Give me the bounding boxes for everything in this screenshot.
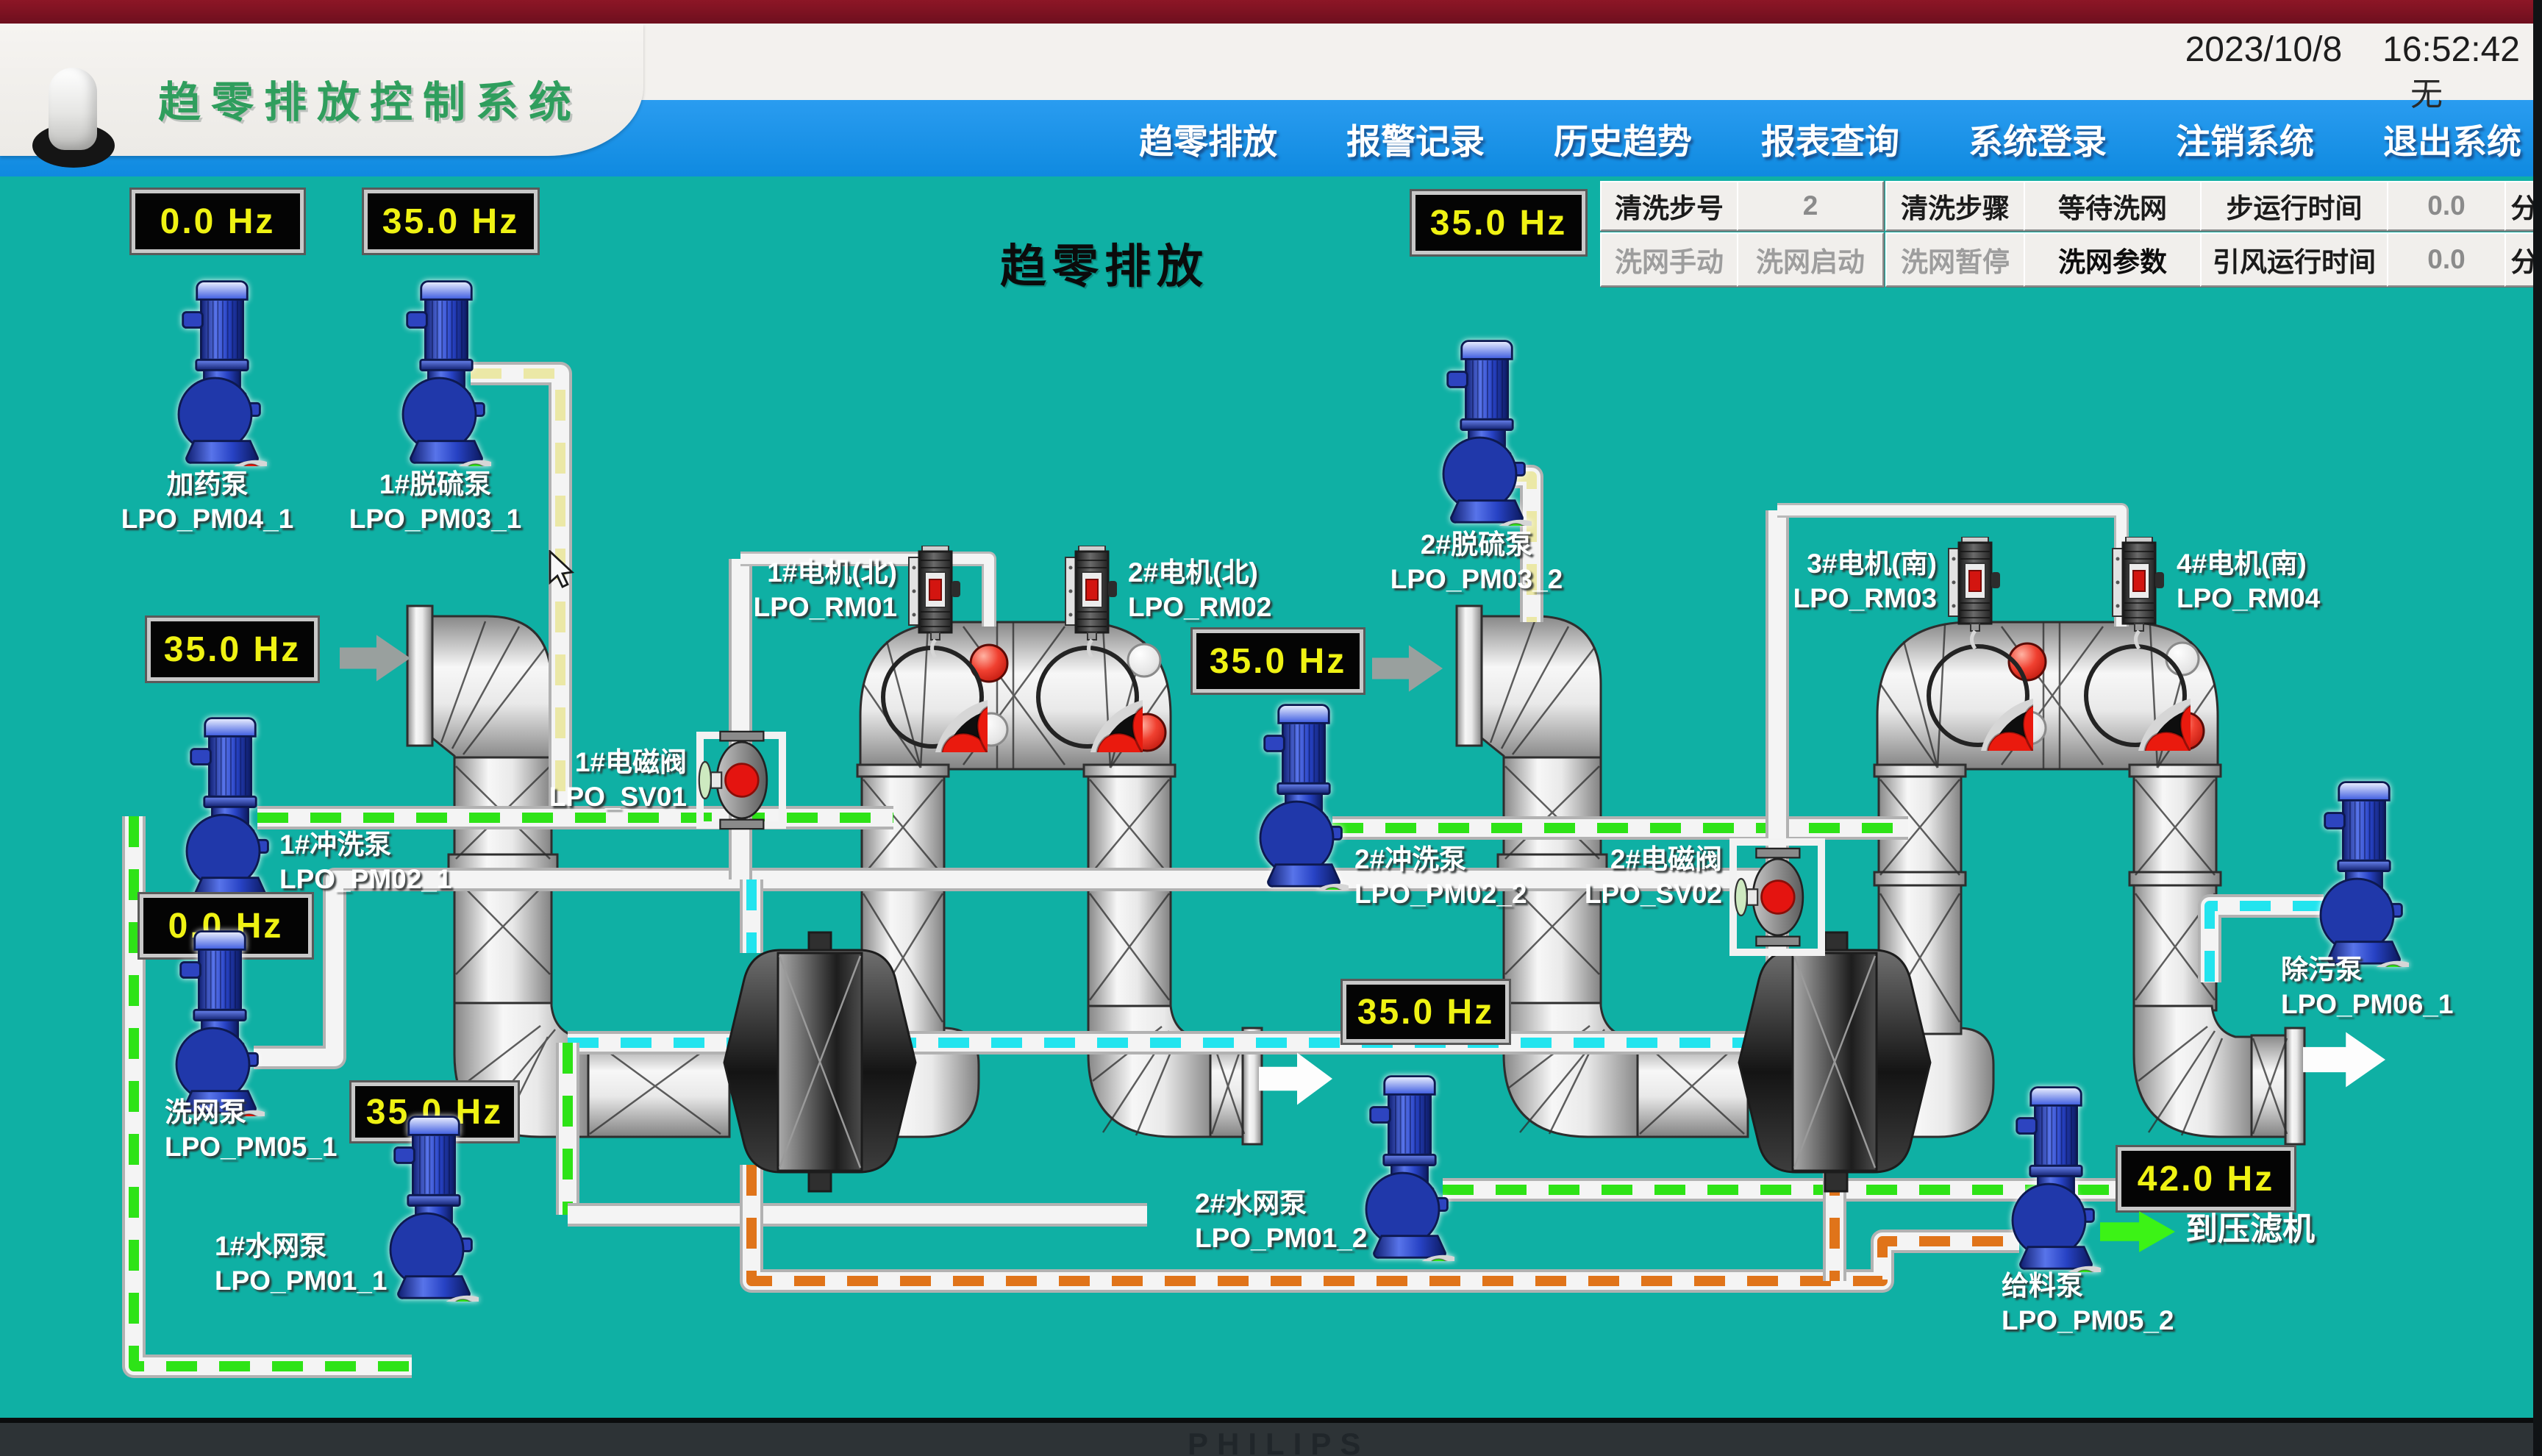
hz-value: 35.0 Hz (1357, 992, 1494, 1032)
pump-lpo_pm04_1-name: 加药泵 (121, 468, 293, 502)
pump-lpo_pm01_2-code: LPO_PM01_2 (1195, 1221, 1367, 1256)
alarm-beacon-icon (31, 68, 119, 171)
nav-item-3[interactable]: 报表查询 (1761, 113, 1899, 164)
motor-lpo_rm03-code: LPO_RM03 (1793, 582, 1937, 616)
motor-lpo_rm02-name: 2#电机(北) (1128, 556, 1271, 590)
flow-out-label: 到压滤机 (2185, 1209, 2315, 1249)
hz-display-lpo_pm03_2: 35.0 Hz (1412, 191, 1585, 254)
hz-value: 35.0 Hz (1430, 203, 1567, 243)
valve-lpo_sv01-code: LPO_SV01 (549, 780, 687, 815)
nav-item-0[interactable]: 趋零排放 (1139, 113, 1277, 164)
hz-value: 42.0 Hz (2138, 1159, 2274, 1199)
pump-lpo_pm01_1-code: LPO_PM01_1 (215, 1264, 387, 1299)
pump-lpo_pm02_1-label: 1#冲洗泵LPO_PM02_1 (279, 828, 451, 896)
pump-lpo_pm02_2-label: 2#冲洗泵LPO_PM02_2 (1354, 843, 1527, 911)
pump-lpo_pm01_1-label: 1#水网泵LPO_PM01_1 (215, 1230, 387, 1298)
system-title: 趋零排放控制系统 (158, 68, 582, 129)
panel-r1-c1-label: 清洗步号 (1600, 181, 1738, 231)
hz-display-lpo_pm02_2: 35.0 Hz (1193, 629, 1363, 693)
pump-lpo_pm01_2-name: 2#水网泵 (1195, 1187, 1367, 1221)
nav-menu: 趋零排放报警记录历史趋势报表查询系统登录注销系统退出系统 (1139, 104, 2521, 172)
hz-display-lpo_pm03_1: 35.0 Hz (364, 190, 538, 253)
pump-lpo_pm03_2-label: 2#脱硫泵LPO_PM03_2 (1390, 528, 1563, 596)
hz-display-lpo_pm01_2: 35.0 Hz (1343, 981, 1509, 1043)
valve-lpo_sv02-label: 2#电磁阀LPO_SV02 (1585, 843, 1722, 911)
panel-r2-c4-button[interactable]: 洗网参数 (2024, 232, 2202, 287)
pump-lpo_pm01_2-label: 2#水网泵LPO_PM01_2 (1195, 1187, 1367, 1255)
motor-lpo_rm01-code: LPO_RM01 (754, 590, 897, 625)
motor-lpo_rm04-code: LPO_RM04 (2177, 582, 2320, 616)
mouse-cursor (547, 550, 576, 588)
pump-lpo_pm02_2[interactable] (1259, 699, 1349, 890)
pump-lpo_pm05_1-code: LPO_PM05_1 (165, 1130, 337, 1165)
pump-lpo_pm02_1[interactable] (185, 713, 275, 903)
panel-r2-c5-label: 引风运行时间 (2200, 232, 2388, 287)
pump-lpo_pm02_1-code: LPO_PM02_1 (279, 863, 451, 897)
pump-lpo_pm04_1-label: 加药泵LPO_PM04_1 (121, 468, 293, 536)
hz-value: 35.0 Hz (164, 629, 301, 670)
valve-lpo_sv01[interactable] (698, 729, 785, 831)
page-title: 趋零排放 (1000, 229, 1209, 296)
pump-lpo_pm04_1[interactable] (177, 276, 267, 466)
pump-lpo_pm02_2-name: 2#冲洗泵 (1354, 843, 1527, 877)
valve-lpo_sv02[interactable] (1734, 846, 1821, 948)
motor-lpo_rm01[interactable] (907, 546, 963, 660)
pump-lpo_pm02_1-name: 1#冲洗泵 (279, 828, 451, 863)
panel-r2-c2-button-disabled[interactable]: 洗网启动 (1737, 232, 1884, 287)
hz-value: 35.0 Hz (382, 201, 519, 242)
hz-display-lpo_pm05_2: 42.0 Hz (2118, 1147, 2294, 1210)
pump-lpo_pm05_1[interactable] (175, 926, 265, 1116)
motor-lpo_rm04[interactable] (2111, 537, 2167, 652)
duct-fan-4 (2080, 640, 2191, 751)
panel-r2-c3-button-disabled[interactable]: 洗网暂停 (1885, 232, 2025, 287)
panel-r2-c1-button-disabled[interactable]: 洗网手动 (1600, 232, 1738, 287)
panel-r1-c5-label: 步运行时间 (2200, 181, 2388, 231)
valve-lpo_sv01-label: 1#电磁阀LPO_SV01 (549, 746, 687, 814)
valve-lpo_sv02-code: LPO_SV02 (1585, 877, 1722, 912)
monitor-brand-logo: PHILIPS (1188, 1427, 1369, 1456)
hz-display-lpo_pm02_1: 35.0 Hz (147, 618, 318, 681)
motor-lpo_rm01-name: 1#电机(北) (754, 556, 897, 590)
pump-lpo_pm06_1-name: 除污泵 (2281, 953, 2453, 988)
nav-item-5[interactable]: 注销系统 (2176, 113, 2314, 164)
datetime: 2023/10/816:52:42 (2108, 29, 2520, 70)
motor-lpo_rm04-label: 4#电机(南)LPO_RM04 (2177, 547, 2320, 615)
panel-r1-c2-value: 2 (1737, 181, 1884, 231)
motor-lpo_rm01-label: 1#电机(北)LPO_RM01 (754, 556, 897, 624)
pump-lpo_pm03_2-name: 2#脱硫泵 (1390, 528, 1563, 563)
pump-lpo_pm01_1-name: 1#水网泵 (215, 1230, 387, 1264)
pump-lpo_pm05_2-name: 给料泵 (2002, 1269, 2174, 1304)
pump-lpo_pm04_1-code: LPO_PM04_1 (121, 502, 293, 537)
hz-display-lpo_pm04_1: 0.0 Hz (132, 190, 304, 253)
valve-lpo_sv02-name: 2#电磁阀 (1585, 843, 1722, 877)
pump-lpo_pm05_2-code: LPO_PM05_2 (2002, 1304, 2174, 1338)
duct-fan-3 (1923, 640, 2033, 751)
panel-r1-c4-status: 等待洗网 (2024, 181, 2202, 231)
time-label: 16:52:42 (2382, 30, 2520, 69)
pump-lpo_pm06_1-label: 除污泵LPO_PM06_1 (2281, 953, 2453, 1021)
valve-lpo_sv01-name: 1#电磁阀 (549, 746, 687, 780)
pump-lpo_pm03_1[interactable] (401, 276, 491, 466)
panel-r1-c3-label: 清洗步骤 (1885, 181, 2025, 231)
nav-item-4[interactable]: 系统登录 (1968, 113, 2107, 164)
pump-lpo_pm02_2-code: LPO_PM02_2 (1354, 877, 1527, 912)
nav-item-6[interactable]: 退出系统 (2383, 113, 2521, 164)
pump-lpo_pm03_2[interactable] (1442, 335, 1532, 526)
pump-lpo_pm05_2[interactable] (2011, 1082, 2101, 1272)
date-label: 2023/10/8 (2185, 30, 2343, 69)
pump-lpo_pm05_2-label: 给料泵LPO_PM05_2 (2002, 1269, 2174, 1338)
nav-item-1[interactable]: 报警记录 (1346, 113, 1485, 164)
motor-lpo_rm03-label: 3#电机(南)LPO_RM03 (1793, 547, 1937, 615)
pump-lpo_pm05_1-name: 洗网泵 (165, 1096, 337, 1130)
pump-lpo_pm03_1-label: 1#脱硫泵LPO_PM03_1 (349, 468, 521, 536)
pump-lpo_pm05_1-label: 洗网泵LPO_PM05_1 (165, 1096, 337, 1164)
pump-lpo_pm01_1[interactable] (389, 1111, 479, 1302)
pump-lpo_pm03_1-code: LPO_PM03_1 (349, 502, 521, 537)
top-maroon-stripe (0, 0, 2542, 24)
hz-value: 0.0 Hz (160, 201, 276, 242)
pump-lpo_pm03_1-name: 1#脱硫泵 (349, 468, 521, 502)
motor-lpo_rm03[interactable] (1947, 537, 2003, 652)
hmi-screen: 趋零排放控制系统 2023/10/816:52:42 无 趋零排放报警记录历史趋… (0, 0, 2542, 1456)
pump-lpo_pm06_1-code: LPO_PM06_1 (2281, 988, 2453, 1022)
motor-lpo_rm02-code: LPO_RM02 (1128, 590, 1271, 625)
hz-value: 35.0 Hz (1210, 641, 1346, 682)
motor-lpo_rm04-name: 4#电机(南) (2177, 547, 2320, 582)
panel-r1-c6-value: 0.0 (2387, 181, 2506, 231)
pump-lpo_pm01_2[interactable] (1365, 1071, 1454, 1261)
motor-lpo_rm03-name: 3#电机(南) (1793, 547, 1937, 582)
monitor-bezel-right (2533, 0, 2542, 1456)
pump-lpo_pm06_1[interactable] (2319, 777, 2409, 967)
nav-item-2[interactable]: 历史趋势 (1554, 113, 1692, 164)
pump-lpo_pm03_2-code: LPO_PM03_2 (1390, 563, 1563, 597)
motor-lpo_rm02[interactable] (1064, 546, 1120, 660)
motor-lpo_rm02-label: 2#电机(北)LPO_RM02 (1128, 556, 1271, 624)
panel-r2-c6-value: 0.0 (2387, 232, 2506, 287)
